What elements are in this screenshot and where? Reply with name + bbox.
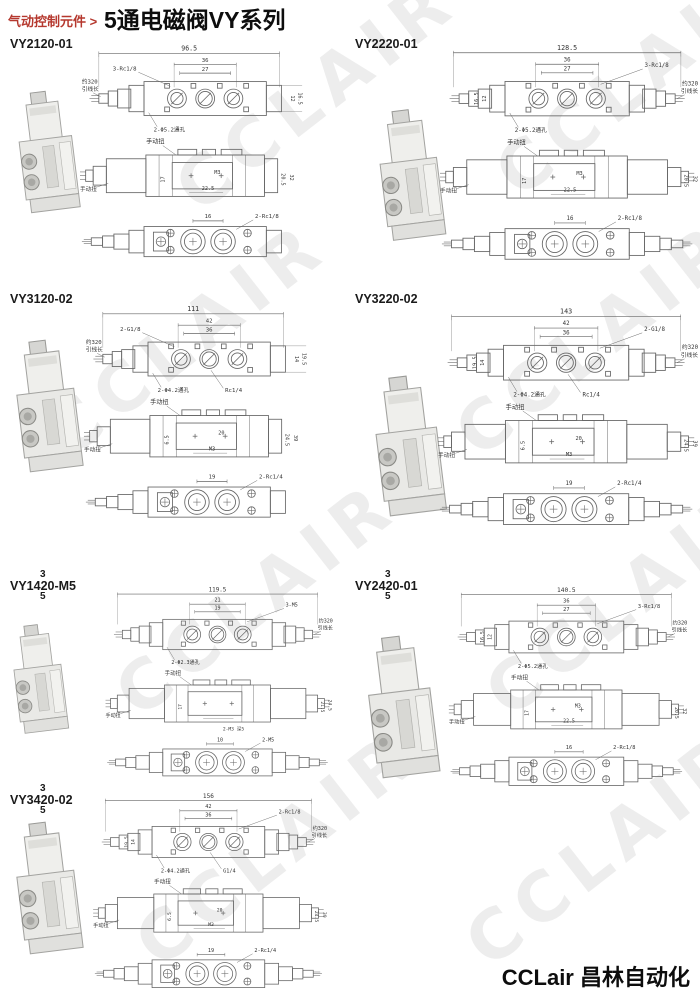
technical-drawing-vy3120-02: 11142362-G1/82-Φ4.2通孔Rc1/41419.5约320引线长手… xyxy=(84,298,340,533)
model-label-vy1420-m5: 3 VY1420-M5 5 xyxy=(10,570,76,602)
dim-label: 6.5 xyxy=(521,441,527,451)
model-label-vy3120-02: VY3120-02 xyxy=(10,293,73,305)
dim-label: 14 xyxy=(293,356,299,362)
dim-label: 2-M3 深5 xyxy=(223,725,244,732)
dim-label: 引线长 xyxy=(318,624,333,631)
model-label-vy3220-02: VY3220-02 xyxy=(355,293,418,305)
dim-label: 手动扭 xyxy=(438,451,456,459)
dim-label: 20.5 xyxy=(279,173,285,185)
dim-label: 2-Rc1/8 xyxy=(618,216,643,222)
dim-label: 引线长 xyxy=(671,626,688,634)
model-label-vy2220-01: VY2220-01 xyxy=(355,38,418,50)
technical-drawing-vy3220-02: 14342362-G1/82-Φ4.2通孔Rc1/419.514约320引线长手… xyxy=(438,298,700,543)
dim-label: 24.5 xyxy=(683,439,689,452)
dim-label: 119.5 xyxy=(209,588,227,594)
dim-label: 24.5 xyxy=(283,434,289,446)
dim-label: 2-Φ4.2通孔 xyxy=(161,866,191,874)
dim-label: 3-Rc1/8 xyxy=(638,604,660,610)
dim-label: 19 xyxy=(208,948,214,954)
dim-label: 19 xyxy=(566,481,573,487)
dim-label: 16.5 xyxy=(296,92,302,104)
dim-label: 引线长 xyxy=(86,346,103,354)
model-text: VY2220-01 xyxy=(355,37,418,51)
dim-label: 42 xyxy=(206,318,213,324)
dim-label: 12 xyxy=(487,634,493,640)
dim-label: 19.5 xyxy=(473,356,479,369)
dim-label: 20 xyxy=(217,907,223,913)
dim-label: 2-G1/8 xyxy=(644,327,665,333)
dim-label: 引线长 xyxy=(312,831,328,839)
dim-label: 2-Rc1/4 xyxy=(254,948,276,954)
dim-label: 2-Φ4.2通孔 xyxy=(513,390,546,398)
dim-label: 引线长 xyxy=(82,85,99,93)
dim-label: M3 xyxy=(575,704,581,710)
dim-label: M3 xyxy=(208,922,214,928)
dim-label: 22.5 xyxy=(564,187,577,193)
dim-label: 14 xyxy=(480,360,486,366)
dim-label: 143 xyxy=(560,308,572,316)
dim-label: 2-Rc1/4 xyxy=(617,481,642,487)
dim-label: 32 xyxy=(288,174,294,180)
model-variant-bottom: 5 xyxy=(40,806,73,816)
dim-label: 17 xyxy=(161,176,167,182)
dim-label: 36 xyxy=(563,599,569,605)
dim-label: 19.5 xyxy=(300,353,306,365)
technical-drawing-vy2420-01: 140.536273-Rc1/82-Φ5.2通孔16.512约320引线长手动扭… xyxy=(438,584,700,796)
dim-label: 20 xyxy=(575,436,581,442)
dim-label: 引线长 xyxy=(681,351,699,359)
dim-label: 3-Rc1/8 xyxy=(113,66,137,72)
dim-label: 2-Φ4.2通孔 xyxy=(158,386,190,394)
dim-label: M3 xyxy=(209,446,215,452)
dim-label: 156 xyxy=(203,793,214,800)
dim-label: 111 xyxy=(187,305,199,313)
dim-label: 36 xyxy=(205,812,211,818)
dim-label: 140.5 xyxy=(557,587,576,594)
dim-label: G1/4 xyxy=(223,868,236,874)
page-title: 5通电磁阀VY系列 xyxy=(104,1,285,35)
dim-label: 2-Φ5.2通孔 xyxy=(518,662,548,670)
dim-label: 6.5 xyxy=(167,912,173,921)
dim-label: M3 xyxy=(566,452,572,458)
dim-label: 6.5 xyxy=(165,435,171,444)
dim-label: 2-Rc1/8 xyxy=(255,214,279,220)
dim-label: 128.5 xyxy=(557,44,577,52)
technical-drawing-vy2220-01: 128.536273-Rc1/82-Φ5.2通孔16.512约320引线长手动扭… xyxy=(440,36,700,276)
dim-label: 20 xyxy=(218,430,224,436)
dim-label: 手动扭 xyxy=(506,402,525,411)
dim-label: 手动扭 xyxy=(93,921,109,929)
model-label-vy2420-01: 3 VY2420-01 5 xyxy=(355,570,418,602)
dim-label: 手动扭 xyxy=(449,718,466,726)
dim-label: Rc1/4 xyxy=(225,388,243,394)
dim-label: 20.5 xyxy=(673,707,679,719)
dim-label: 22.5 xyxy=(563,719,575,725)
dim-label: 16.5 xyxy=(474,92,480,105)
model-variant-bottom: 5 xyxy=(40,592,76,602)
dim-label: 12 xyxy=(289,95,295,101)
dim-label: 2-Rc1/4 xyxy=(259,475,283,481)
dim-label: 27 xyxy=(202,67,209,73)
dim-label: M3 xyxy=(576,171,582,177)
product-photo xyxy=(0,806,92,970)
dim-label: 39 xyxy=(321,912,327,918)
dim-label: 17 xyxy=(524,710,530,716)
dim-label: 手动扭 xyxy=(80,185,97,193)
dim-label: 2-Φ5.2通孔 xyxy=(515,126,547,134)
product-photo xyxy=(0,598,76,760)
model-variant-bottom: 5 xyxy=(385,592,418,602)
dim-label: 22.5 xyxy=(202,186,214,192)
model-text: VY3120-02 xyxy=(10,292,73,306)
technical-drawing-vy3420-02: 15642362-Rc1/82-Φ4.2通孔G1/419.514约320引线长手… xyxy=(82,790,340,998)
dim-label: 36 xyxy=(206,327,213,333)
dim-label: 手动扭 xyxy=(106,712,121,719)
dim-label: 12 xyxy=(482,95,488,101)
dim-label: 42 xyxy=(205,804,211,810)
model-label-vy3420-02: 3 VY3420-02 5 xyxy=(10,784,73,816)
dim-label: 32 xyxy=(681,708,687,714)
dim-label: 19.5 xyxy=(124,836,130,848)
breadcrumb: 气动控制元件 > xyxy=(8,11,97,30)
dim-label: 手动扭 xyxy=(84,445,101,453)
dim-label: 手动扭 xyxy=(511,673,528,681)
dim-label: 21 xyxy=(214,598,220,604)
dim-label: 手动扭 xyxy=(507,139,526,147)
dim-label: 约320 xyxy=(313,824,328,832)
dim-label: 24.5 xyxy=(313,911,319,923)
dim-label: 约320 xyxy=(682,79,699,87)
dim-label: 16 xyxy=(566,745,572,751)
dim-label: 16 xyxy=(205,214,212,220)
dim-label: 约320 xyxy=(86,338,102,346)
dim-label: 2-G1/8 xyxy=(120,327,141,333)
dim-label: 约320 xyxy=(682,343,699,351)
dim-label: 24.5 xyxy=(327,700,333,711)
dim-label: 约320 xyxy=(82,77,98,85)
dim-label: 19 xyxy=(209,475,216,481)
model-text: VY2120-01 xyxy=(10,37,73,51)
dim-label: 约320 xyxy=(672,619,687,627)
dim-label: 42 xyxy=(563,321,570,327)
dim-label: 19 xyxy=(214,606,220,612)
dim-label: 36 xyxy=(564,57,571,63)
dim-label: 手动扭 xyxy=(154,878,171,886)
dim-label: 36 xyxy=(202,58,209,64)
dim-label: 36 xyxy=(563,330,570,336)
technical-drawing-vy1420-m5: 119.521193-M52-Φ2.3通孔约320引线长手动扭手动扭1721.5… xyxy=(96,584,344,786)
dim-label: 2-Φ5.2通孔 xyxy=(154,125,186,133)
dim-label: 手动扭 xyxy=(146,138,164,146)
technical-drawing-vy2120-01: 96.536273-Rc1/82-Φ5.2通孔1216.5约320引线长手动扭M… xyxy=(80,40,336,270)
brand-footer: CCLair 昌林自动化 xyxy=(502,960,690,992)
dim-label: 17 xyxy=(177,704,183,710)
dim-label: 2-M5 xyxy=(262,737,274,743)
dim-label: 20.5 xyxy=(683,175,689,188)
dim-label: 2-Φ2.3通孔 xyxy=(171,659,199,666)
dim-label: 3-M5 xyxy=(286,603,298,609)
dim-label: 17 xyxy=(522,178,528,184)
model-text: VY3220-02 xyxy=(355,292,418,306)
dim-label: 96.5 xyxy=(181,45,197,53)
dim-label: 32 xyxy=(691,176,697,182)
dim-label: 10 xyxy=(217,737,223,743)
dim-label: 3-Rc1/8 xyxy=(645,63,670,69)
dim-label: 约320 xyxy=(319,618,333,625)
dim-label: 2-Rc1/8 xyxy=(279,809,301,815)
dim-label: 手动扭 xyxy=(150,398,168,406)
model-label-vy2120-01: VY2120-01 xyxy=(10,38,73,50)
dim-label: 39 xyxy=(292,435,298,441)
dim-label: 2-Rc1/8 xyxy=(613,745,635,751)
dim-label: 27 xyxy=(563,607,569,613)
dim-label: Rc1/4 xyxy=(582,392,600,398)
product-photo xyxy=(0,330,92,482)
dim-label: 手动扭 xyxy=(440,186,457,194)
dim-label: 21.5 xyxy=(319,701,325,712)
dim-label: 14 xyxy=(131,839,137,845)
dim-label: 27 xyxy=(564,66,571,72)
dim-label: 引线长 xyxy=(681,87,698,95)
dim-label: 16.5 xyxy=(480,631,486,643)
dim-label: 手动扭 xyxy=(165,669,182,677)
product-photo xyxy=(0,86,92,218)
dim-label: 16 xyxy=(567,216,574,222)
dim-label: 39 xyxy=(691,440,697,446)
dim-label: M3 xyxy=(214,170,220,176)
